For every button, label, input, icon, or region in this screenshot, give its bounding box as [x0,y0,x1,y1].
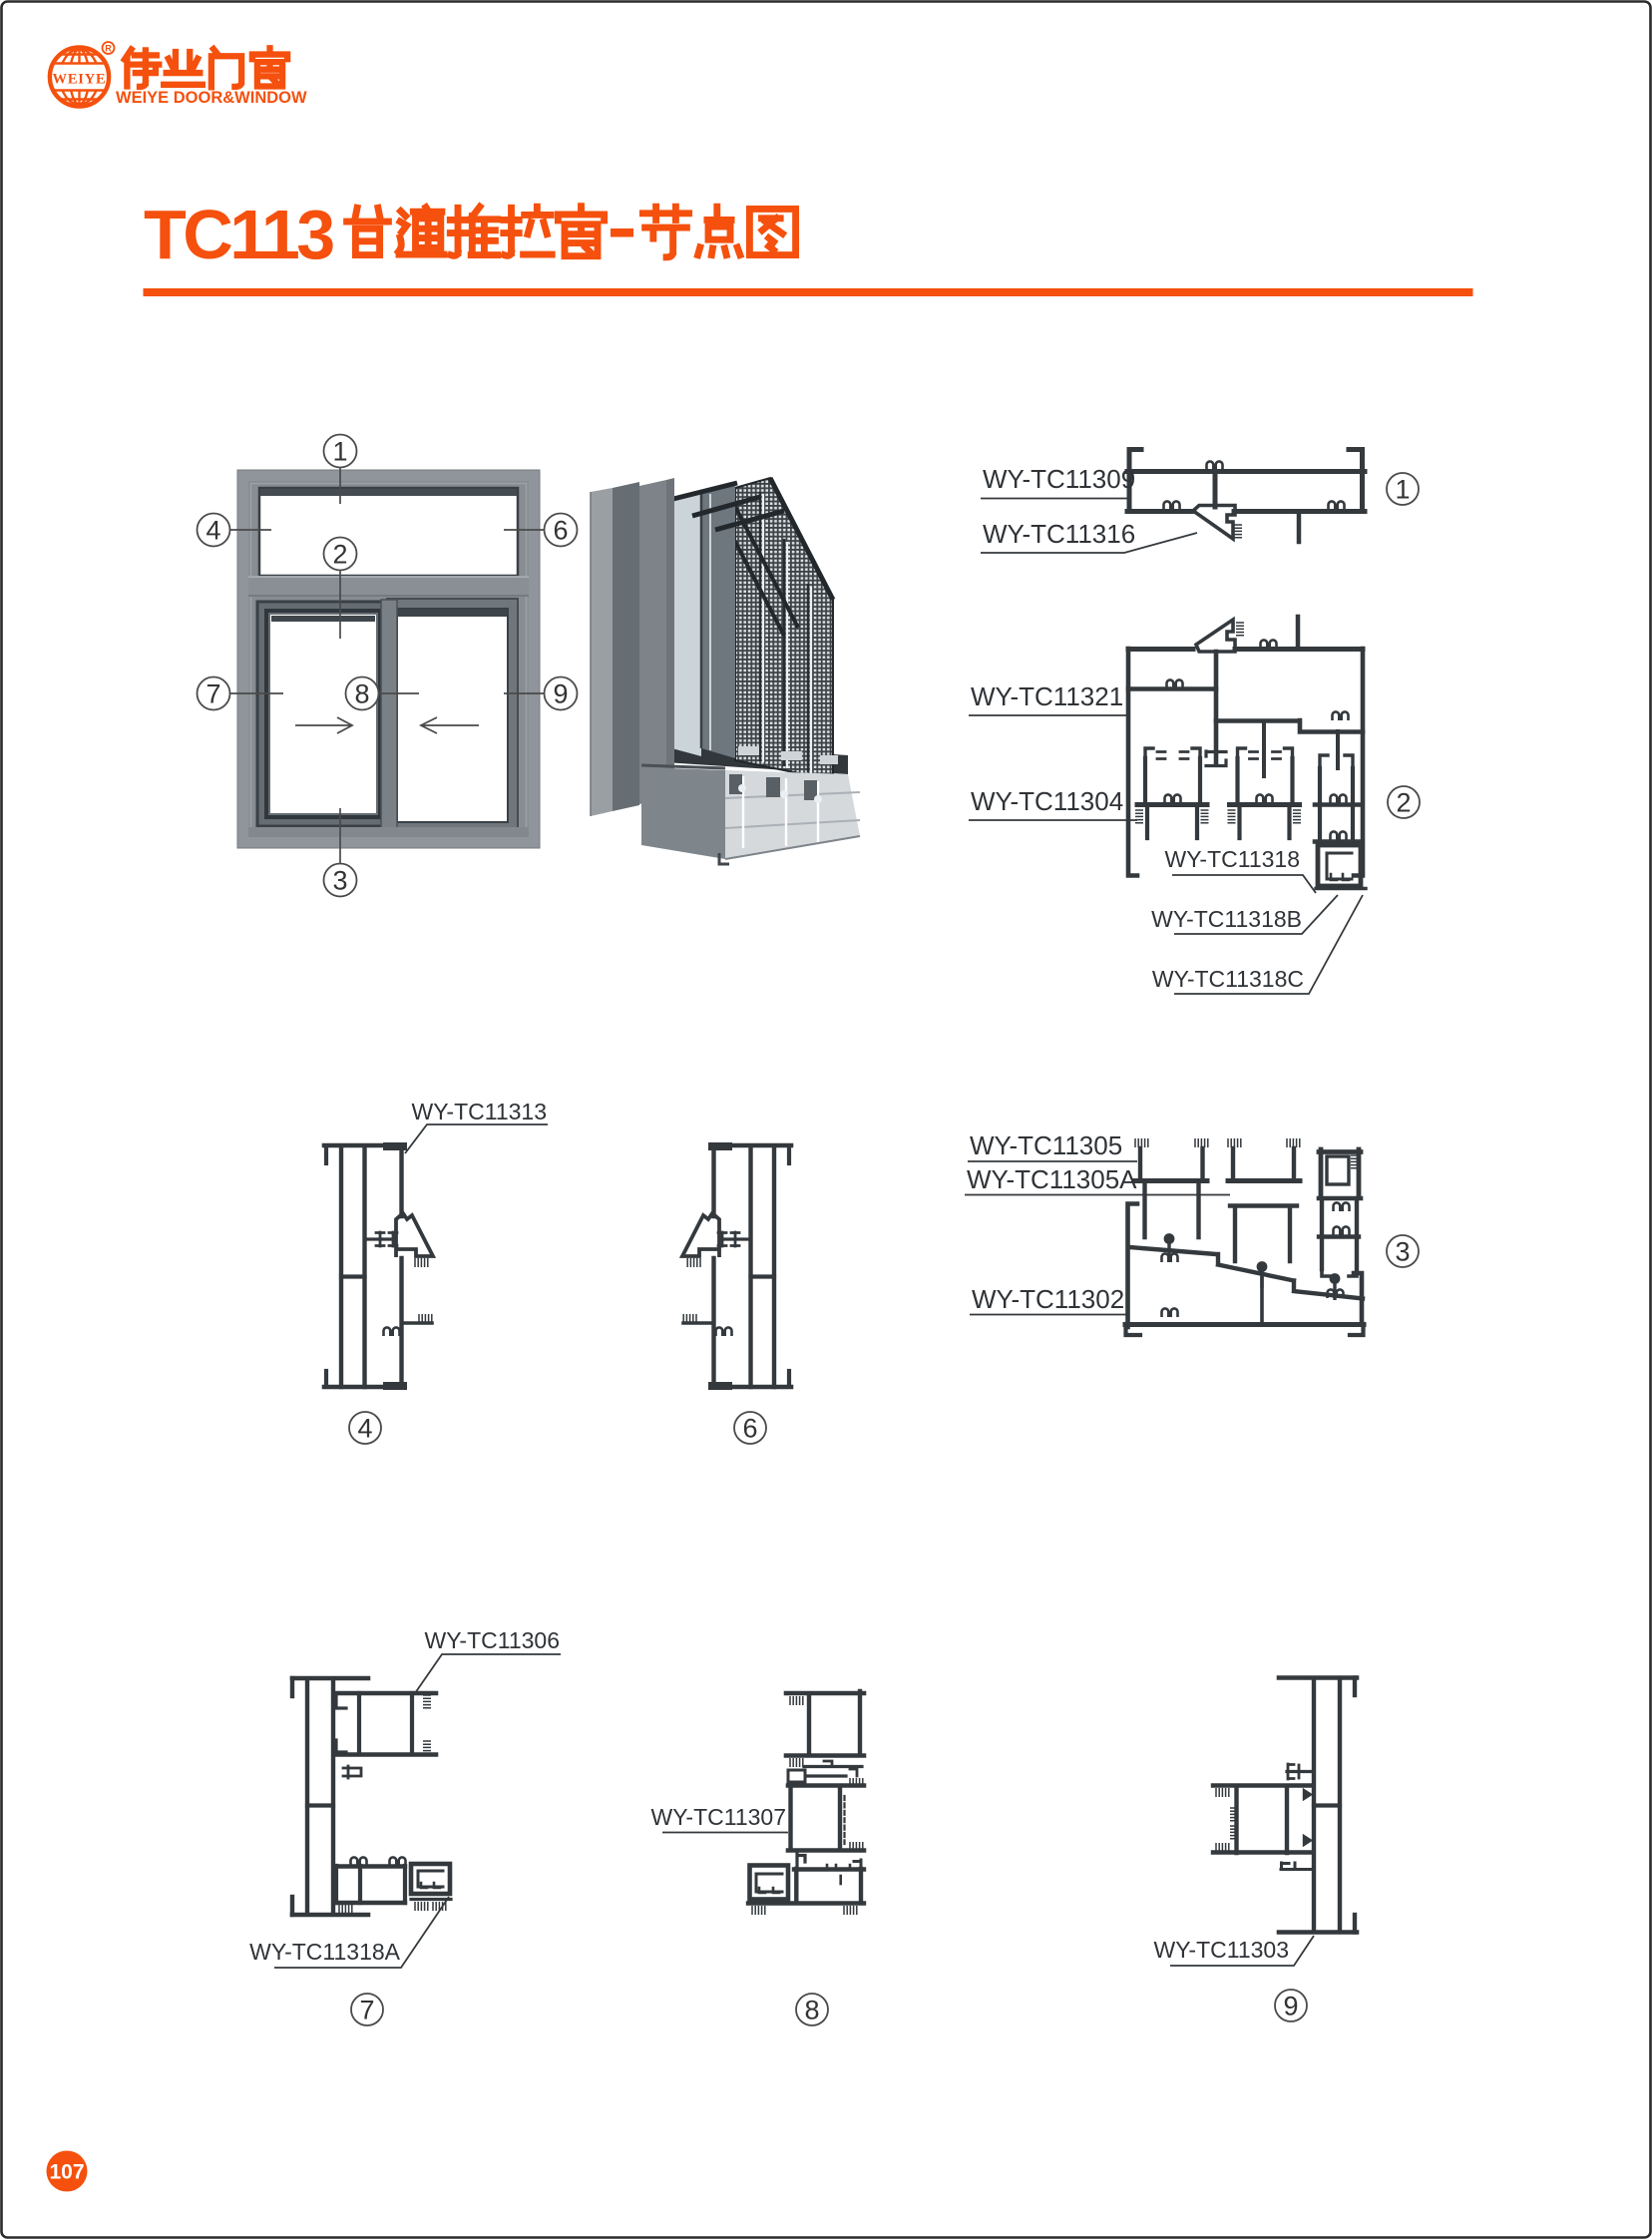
svg-text:WY-TC11318A: WY-TC11318A [249,1939,401,1965]
svg-text:WY-TC11306: WY-TC11306 [424,1627,560,1653]
svg-text:2: 2 [1396,788,1411,818]
svg-text:WY-TC11313: WY-TC11313 [411,1099,547,1124]
svg-text:WY-TC11318B: WY-TC11318B [1151,906,1302,932]
svg-text:TC113: TC113 [144,196,333,273]
svg-text:WY-TC11309: WY-TC11309 [983,464,1135,494]
svg-text:WY-TC11305A: WY-TC11305A [967,1164,1137,1194]
svg-text:WY-TC11304: WY-TC11304 [971,786,1123,816]
svg-text:8: 8 [804,1996,819,2025]
svg-text:R: R [105,44,112,54]
svg-text:WEIYE DOOR&WINDOW: WEIYE DOOR&WINDOW [116,89,307,107]
svg-text:7: 7 [206,679,220,709]
svg-text:WY-TC11307: WY-TC11307 [650,1804,786,1830]
svg-text:WY-TC11303: WY-TC11303 [1153,1937,1289,1963]
svg-text:6: 6 [553,516,568,546]
svg-text:1: 1 [332,437,347,467]
svg-text:2: 2 [332,540,347,570]
svg-text:3: 3 [332,866,347,896]
svg-text:WY-TC11316: WY-TC11316 [983,519,1135,549]
svg-text:6: 6 [742,1414,757,1444]
svg-text:7: 7 [359,1996,374,2025]
svg-text:9: 9 [1283,1992,1298,2021]
svg-text:4: 4 [357,1414,372,1444]
svg-text:WEIYE: WEIYE [53,72,107,88]
svg-text:107: 107 [49,2161,84,2184]
svg-text:4: 4 [206,516,220,546]
svg-text:1: 1 [1395,475,1410,505]
svg-text:WY-TC11318: WY-TC11318 [1164,846,1300,872]
svg-text:WY-TC11318C: WY-TC11318C [1152,966,1304,992]
svg-text:8: 8 [354,679,369,709]
svg-text:9: 9 [553,679,568,709]
svg-text:WY-TC11302: WY-TC11302 [972,1284,1124,1314]
svg-text:3: 3 [1395,1237,1410,1267]
svg-text:WY-TC11305: WY-TC11305 [970,1130,1122,1160]
svg-text:WY-TC11321: WY-TC11321 [971,681,1123,711]
